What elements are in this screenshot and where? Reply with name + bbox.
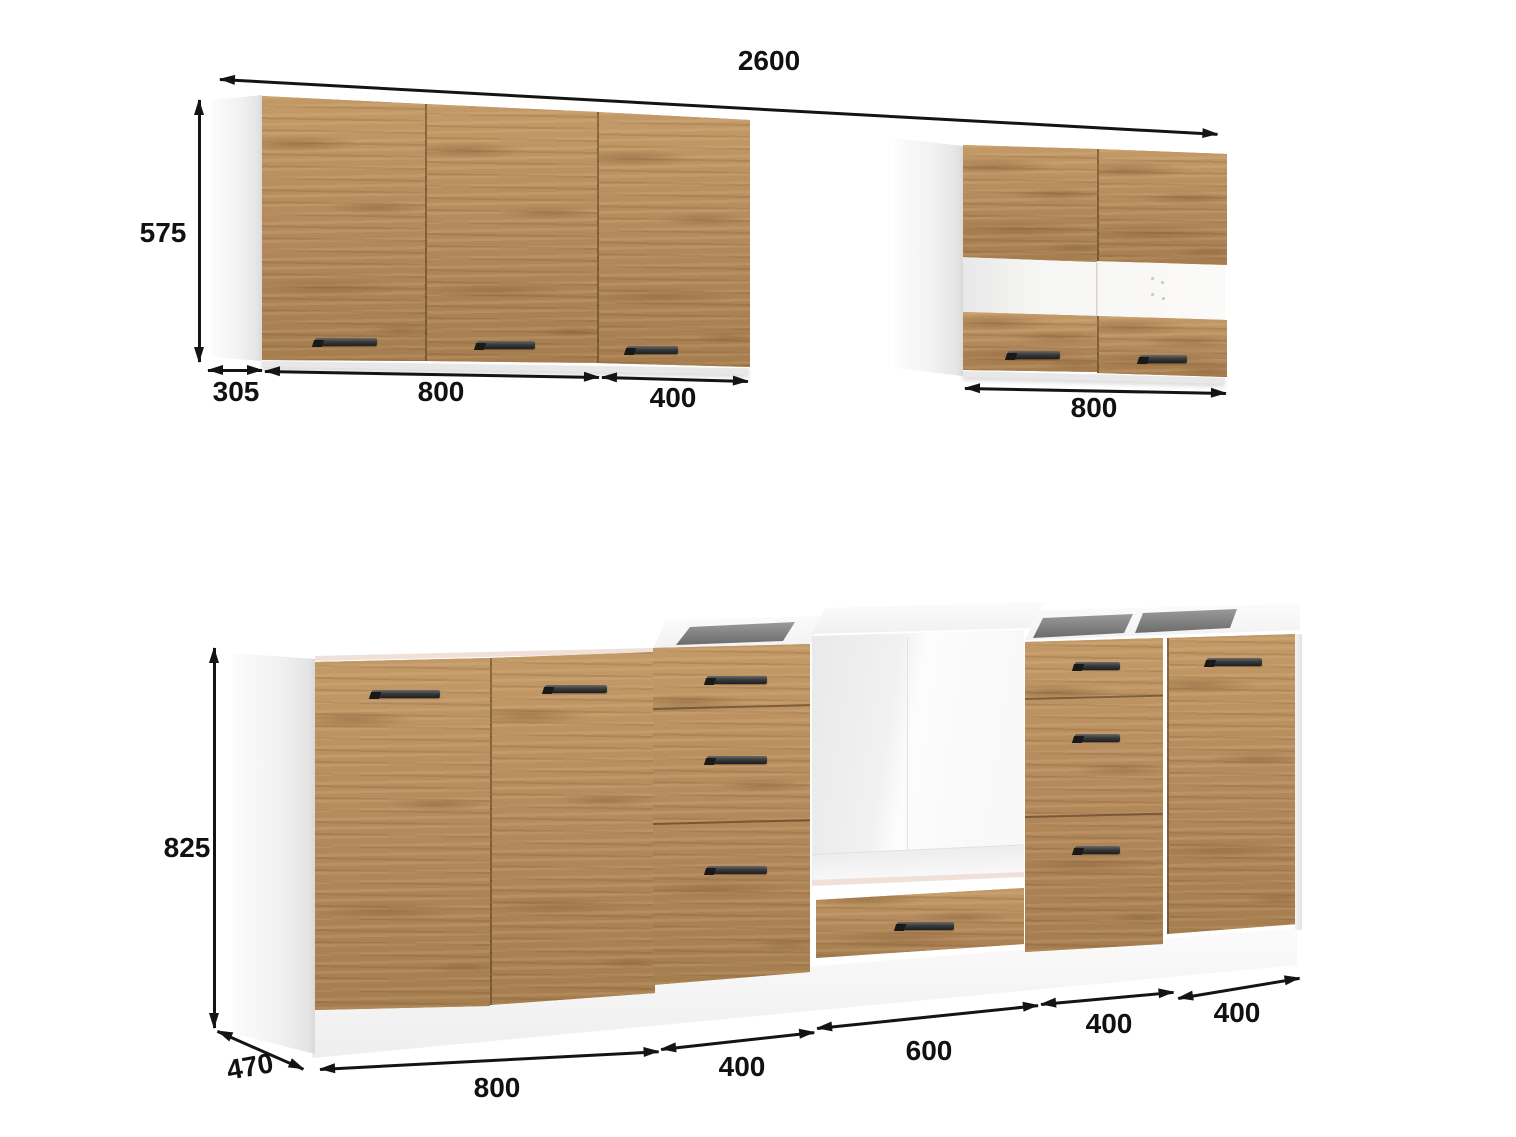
dim-label-base-400a: 400: [719, 1052, 766, 1081]
sink-cutout: [676, 622, 795, 645]
cabinet-door: [425, 104, 599, 363]
base-door: [1167, 630, 1297, 936]
door-handle: [1207, 658, 1262, 666]
dim-label-base-400b: 400: [1086, 1009, 1133, 1038]
dim-line-wall-depth: [208, 369, 262, 372]
oven-niche: [812, 630, 1024, 882]
dim-label-base-600: 600: [906, 1036, 953, 1065]
cabinet-door: [262, 96, 425, 362]
door-handle: [545, 685, 607, 693]
door-handle: [1008, 351, 1060, 359]
cabinet-side-panel: [895, 138, 963, 376]
dim-label-base-height: 825: [164, 833, 211, 862]
drawer-stack: [653, 640, 810, 986]
door-handle: [477, 341, 535, 349]
shelf-pin-holes: [1151, 277, 1154, 280]
dim-line-base-400b: [1041, 991, 1174, 1006]
door-handle: [1140, 355, 1187, 363]
drawer-handle: [707, 676, 767, 684]
door-handle: [627, 346, 678, 354]
open-shelf-compartment: [963, 257, 1225, 321]
kitchen-dimension-diagram: 2600 575 305 800 400 800 825 470 800 400…: [0, 0, 1516, 1137]
cabinet-side-panel: [232, 650, 315, 1054]
dim-line-base-600: [817, 1004, 1038, 1030]
door-handle: [315, 338, 377, 346]
drawer-handle: [707, 756, 767, 764]
base-door: [315, 656, 490, 1010]
dim-label-wall-right-800: 800: [1071, 393, 1118, 422]
dim-line-base-800: [320, 1050, 659, 1071]
flip-door: [1097, 316, 1227, 378]
drawer-handle: [1075, 846, 1120, 854]
dim-label-base-depth: 470: [224, 1048, 275, 1085]
drawer-handle: [897, 922, 954, 930]
dim-label-base-800: 800: [474, 1073, 521, 1102]
dim-line-base-height: [213, 648, 216, 1028]
dim-label-total-width: 2600: [738, 46, 800, 75]
dim-line-wall-height: [198, 100, 201, 362]
drawer-handle: [1075, 734, 1120, 742]
cabinet-door: [597, 112, 750, 368]
dim-label-wall-left-800: 800: [418, 377, 465, 406]
hob-cutout: [1135, 609, 1237, 633]
drawer-stack: [1025, 634, 1163, 956]
dim-label-base-400c: 400: [1214, 998, 1261, 1027]
oven-housing-top: [808, 602, 1045, 634]
base-door: [490, 652, 655, 1005]
dim-label-wall-depth: 305: [213, 377, 260, 406]
hob-cutout: [1033, 614, 1133, 638]
dim-label-wall-left-400: 400: [650, 383, 697, 412]
cabinet-end-edge: [1295, 634, 1302, 930]
dim-label-wall-height: 575: [140, 218, 187, 247]
flip-door: [963, 312, 1097, 372]
cabinet-side-panel: [212, 95, 262, 363]
cabinet-door: [1097, 149, 1227, 266]
drawer-handle: [707, 866, 767, 874]
dim-line-base-400a: [661, 1031, 814, 1051]
drawer-handle: [1075, 662, 1120, 670]
door-handle: [372, 690, 440, 698]
cabinet-door: [963, 145, 1097, 262]
